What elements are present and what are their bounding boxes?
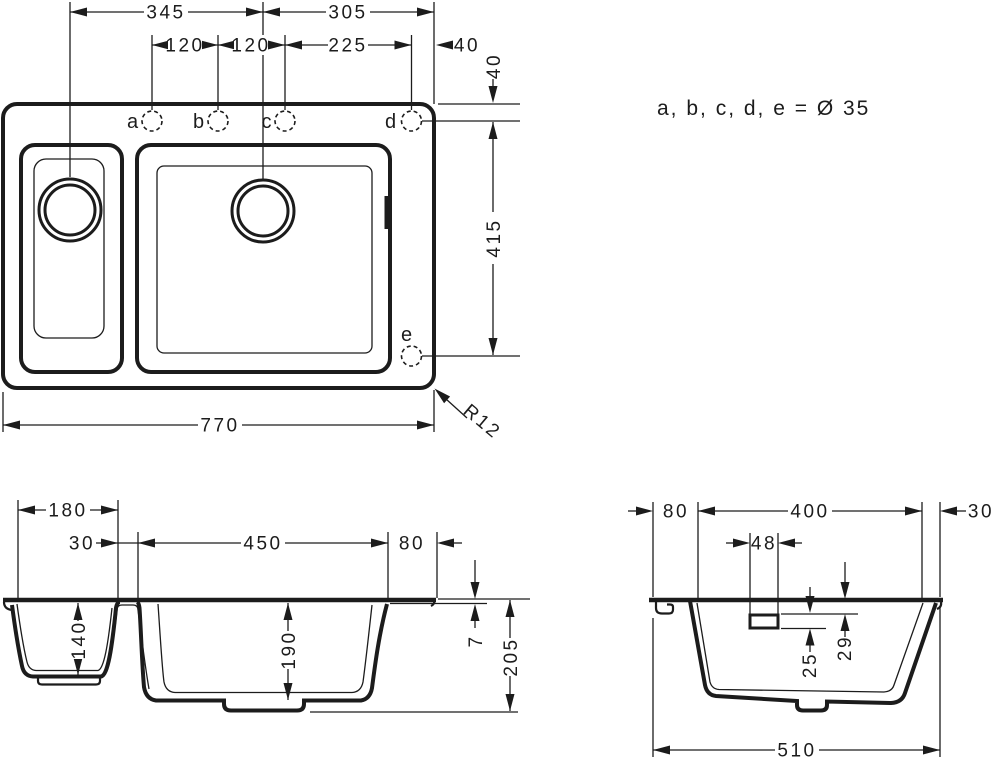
dim-450-text: 450 bbox=[243, 534, 282, 555]
dim-hole-spacing: 120 120 225 40 bbox=[152, 35, 480, 57]
small-bowl-drain-outer bbox=[39, 179, 101, 241]
dim-48: 48 bbox=[726, 534, 802, 555]
dim-510: 510 bbox=[653, 740, 940, 762]
dim-180-text: 180 bbox=[48, 501, 87, 522]
front-large-bowl-inner-line bbox=[158, 604, 372, 693]
side-section-view: 80 400 30 48 29 bbox=[628, 501, 994, 762]
front-small-bowl-foot bbox=[38, 678, 100, 685]
dim-415: 415 bbox=[483, 122, 505, 355]
front-large-bowl-profile bbox=[137, 602, 387, 711]
overflow-cutout bbox=[750, 615, 778, 628]
dim-770-text: 770 bbox=[200, 416, 239, 437]
dim-345-text: 345 bbox=[146, 3, 185, 24]
dim-190: 190 bbox=[278, 603, 300, 700]
large-bowl-drain-inner bbox=[238, 186, 288, 236]
dim-80-front-text: 80 bbox=[399, 534, 425, 555]
dim-30-450-80: 30 450 80 bbox=[69, 533, 462, 555]
dim-40-vertical: 40 bbox=[484, 53, 505, 103]
sink-dimension-drawing: a b c d e 345 305 bbox=[0, 0, 1000, 763]
dim-80-400-30: 80 400 30 bbox=[628, 501, 994, 523]
side-right-lip bbox=[937, 602, 941, 609]
radius-label-text: R12 bbox=[459, 400, 505, 443]
dim-120bc-text: 120 bbox=[231, 36, 270, 57]
top-view-extension-lines bbox=[3, 2, 520, 432]
dim-205: 205 bbox=[500, 600, 522, 711]
dim-415-text: 415 bbox=[484, 218, 505, 257]
dim-120ab-text: 120 bbox=[165, 36, 204, 57]
tap-hole-a bbox=[142, 111, 162, 131]
front-small-bowl-inner-line bbox=[17, 604, 112, 671]
dim-30-side-text: 30 bbox=[968, 502, 994, 523]
dim-7-text: 7 bbox=[466, 634, 487, 647]
tap-hole-c bbox=[275, 111, 295, 131]
dim-400-text: 400 bbox=[790, 502, 829, 523]
dim-48-text: 48 bbox=[751, 534, 777, 555]
overflow-slot-top bbox=[385, 196, 391, 229]
tap-hole-e-label: e bbox=[401, 324, 413, 346]
dim-770: 770 bbox=[3, 415, 434, 437]
tap-hole-d-label: d bbox=[385, 111, 397, 133]
dim-80-side-text: 80 bbox=[663, 502, 689, 523]
dim-190-text: 190 bbox=[279, 630, 300, 669]
dim-305-text: 305 bbox=[328, 3, 367, 24]
dim-180: 180 bbox=[18, 500, 118, 522]
dim-225-text: 225 bbox=[328, 36, 367, 57]
tap-hole-b-label: b bbox=[193, 111, 205, 133]
tap-hole-e bbox=[402, 346, 422, 366]
front-extension-lines bbox=[18, 500, 530, 712]
large-bowl-drain-outer bbox=[232, 180, 294, 242]
dim-40-top-text: 40 bbox=[484, 53, 505, 79]
dim-29-text: 29 bbox=[835, 635, 856, 661]
dim-30-front-text: 30 bbox=[69, 534, 95, 555]
small-bowl-drain-inner bbox=[45, 185, 95, 235]
top-view: a b c d e 345 305 bbox=[3, 2, 870, 444]
corner-radius-callout: R12 bbox=[435, 389, 505, 444]
hole-diameter-note: a, b, c, d, e = Ø 35 bbox=[657, 97, 870, 120]
dim-345-305: 345 305 bbox=[70, 2, 434, 24]
dim-510-text: 510 bbox=[777, 741, 816, 762]
dim-205-text: 205 bbox=[501, 637, 522, 676]
dim-140-text: 140 bbox=[69, 620, 90, 659]
large-bowl-inner-top bbox=[157, 166, 372, 353]
dim-25-text: 25 bbox=[800, 652, 821, 678]
tap-hole-a-label: a bbox=[127, 111, 139, 133]
side-left-hook bbox=[656, 601, 673, 614]
dim-140: 140 bbox=[68, 603, 90, 675]
dim-29: 29 bbox=[835, 562, 856, 661]
tap-hole-d bbox=[402, 111, 422, 131]
dim-40-right-text: 40 bbox=[454, 36, 480, 57]
front-section-view: 180 30 450 80 140 bbox=[3, 500, 530, 712]
tap-hole-b bbox=[208, 111, 228, 131]
tap-hole-c-label: c bbox=[262, 111, 273, 133]
drawing-canvas: a b c d e 345 305 bbox=[0, 0, 1000, 763]
